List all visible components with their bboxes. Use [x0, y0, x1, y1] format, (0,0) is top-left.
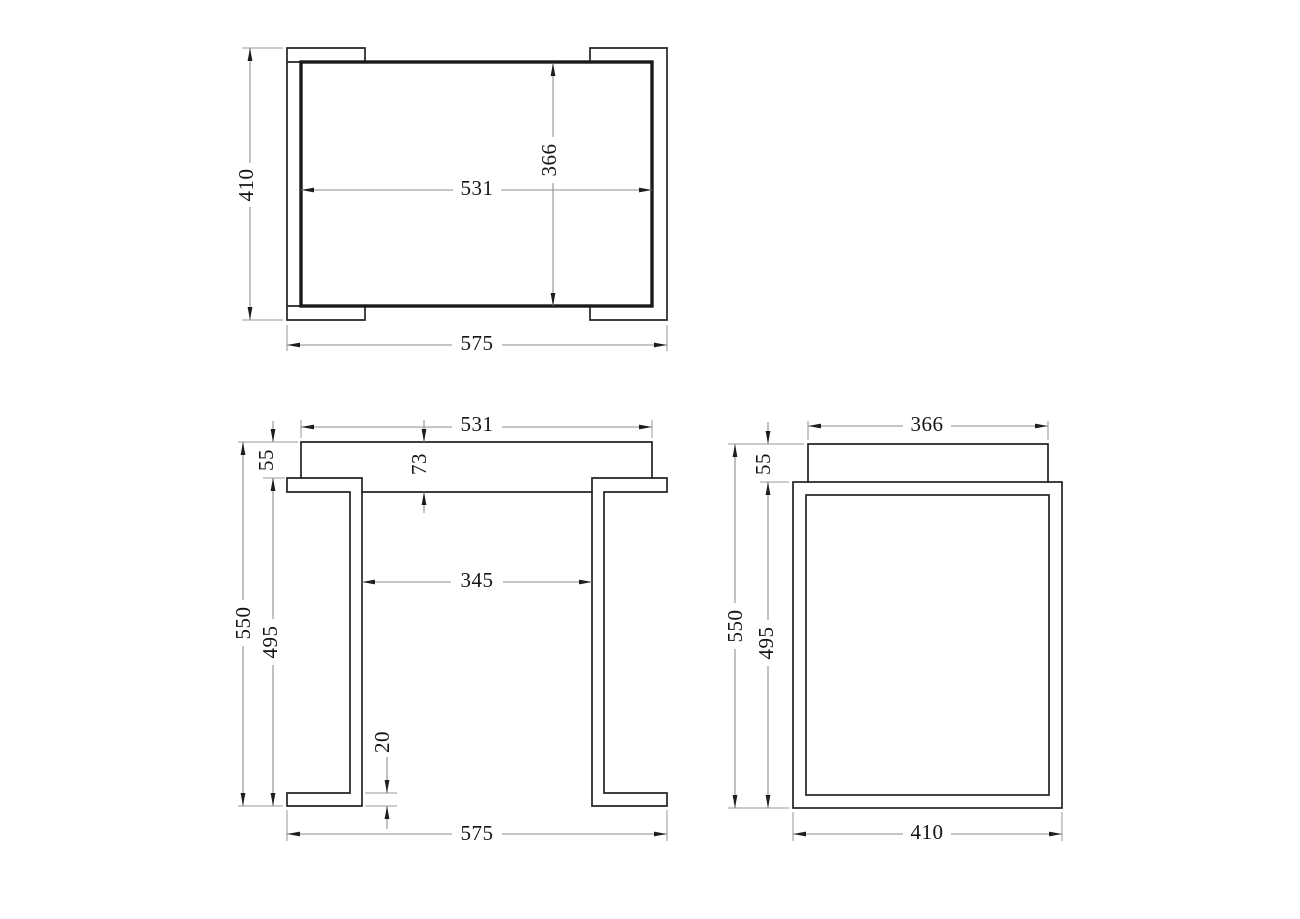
- technical-drawing-canvas: 410 531 366 575 531 55 73: [0, 0, 1300, 919]
- front-dim-label-tabletop-length: 531: [461, 412, 494, 436]
- side-view: 366 55 550 495 410: [723, 412, 1062, 844]
- side-view-tabletop-outline: [808, 444, 1048, 482]
- front-dim-label-overhang: 55: [254, 449, 278, 471]
- front-view: 531 55 73 345 550 495 20 575: [231, 412, 667, 845]
- front-view-right-leg-outline: [592, 478, 667, 806]
- front-view-extension-lines: [238, 420, 667, 841]
- side-view-leg-frame-inner: [806, 495, 1049, 795]
- top-view-right-leg-outline: [590, 48, 667, 320]
- side-dim-label-overall-depth: 410: [911, 820, 944, 844]
- front-view-left-leg-outline: [287, 478, 362, 806]
- three-view-drawing: 410 531 366 575 531 55 73: [0, 0, 1300, 919]
- front-dim-label-leg-height: 495: [258, 626, 282, 659]
- side-dim-label-overhang: 55: [751, 453, 775, 475]
- side-dim-label-tabletop-depth: 366: [911, 412, 944, 436]
- front-dim-label-overall-height: 550: [231, 607, 255, 640]
- front-dim-label-overall-width: 575: [461, 821, 494, 845]
- top-view: 410 531 366 575: [234, 48, 667, 355]
- side-dim-label-overall-height: 550: [723, 610, 747, 643]
- front-dim-label-leg-gap: 345: [461, 568, 494, 592]
- top-view-left-leg-outline: [287, 48, 365, 320]
- top-dim-label-overall-depth: 410: [234, 169, 258, 202]
- top-dim-label-overall-width: 575: [461, 331, 494, 355]
- side-view-leg-frame-outer: [793, 482, 1062, 808]
- front-view-tabletop-outline: [301, 442, 652, 492]
- front-dim-label-foot-thickness: 20: [370, 731, 394, 753]
- front-dim-label-tabletop-thickness: 73: [407, 453, 431, 475]
- side-dim-label-leg-height: 495: [754, 627, 778, 660]
- top-dim-label-tabletop-length: 531: [461, 176, 494, 200]
- top-dim-label-tabletop-depth: 366: [537, 144, 561, 177]
- side-view-extension-lines: [728, 421, 1062, 841]
